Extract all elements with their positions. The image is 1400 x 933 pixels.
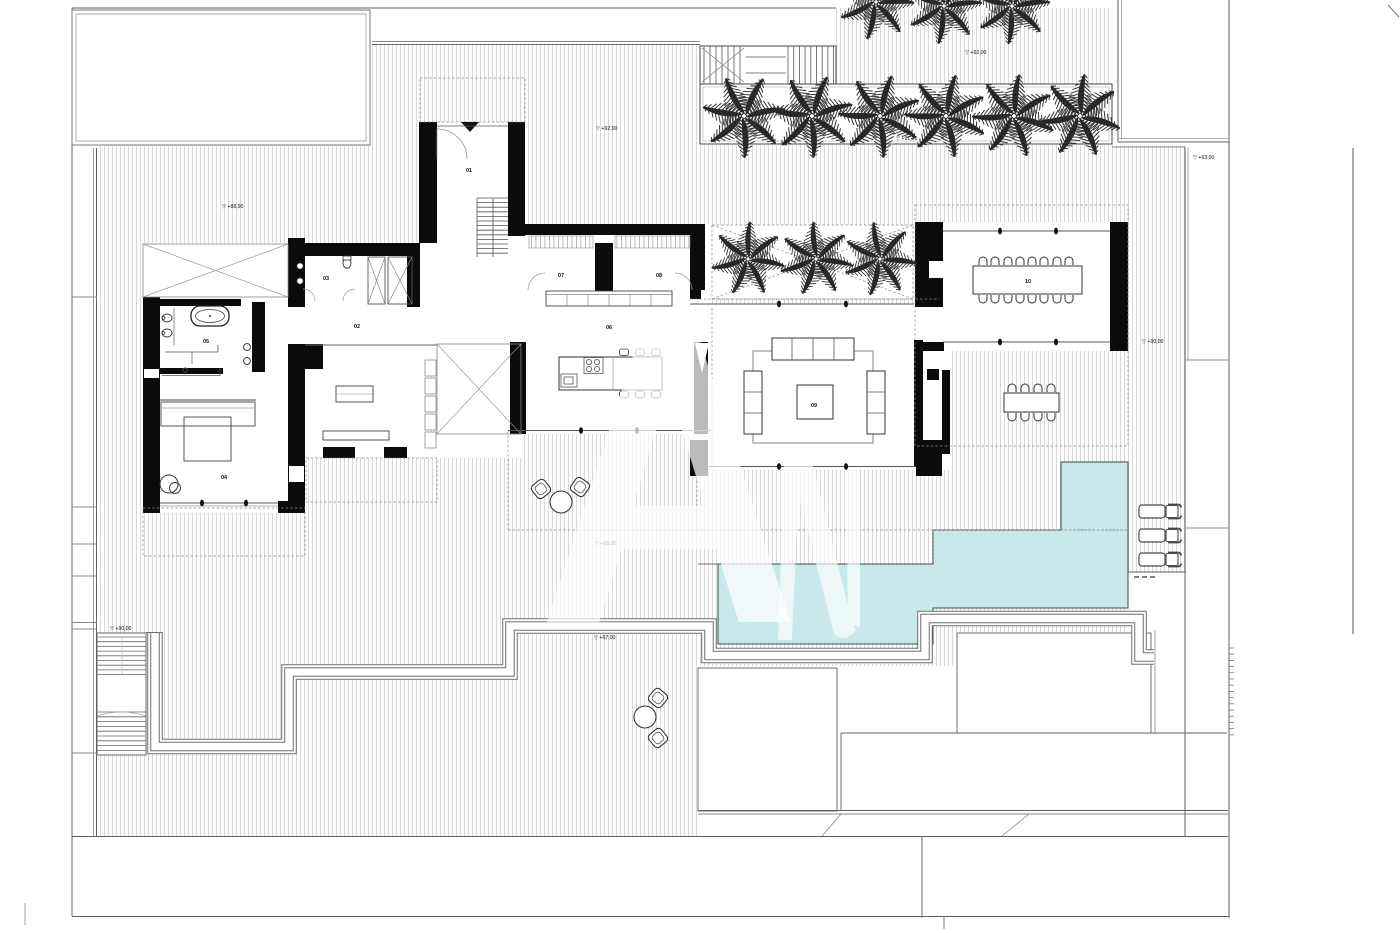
svg-text:03: 03: [323, 276, 329, 282]
svg-text:▽ +63,00: ▽ +63,00: [1193, 155, 1215, 161]
svg-text:02: 02: [354, 324, 360, 330]
svg-text:▽ +90,00: ▽ +90,00: [1142, 339, 1164, 345]
svg-text:A: A: [538, 251, 800, 709]
svg-text:01: 01: [466, 168, 472, 174]
svg-text:04: 04: [221, 475, 228, 481]
svg-text:▽ +62,00: ▽ +62,00: [965, 50, 987, 56]
svg-text:▽ +88,90: ▽ +88,90: [222, 204, 244, 210]
svg-text:▽ +92,00: ▽ +92,00: [596, 126, 618, 132]
svg-text:09: 09: [811, 403, 817, 409]
svg-text:▽ +90,00: ▽ +90,00: [110, 626, 132, 632]
svg-text:10: 10: [1025, 279, 1031, 285]
svg-text:▽ +91,00: ▽ +91,00: [896, 136, 918, 142]
svg-text:05: 05: [203, 339, 209, 345]
